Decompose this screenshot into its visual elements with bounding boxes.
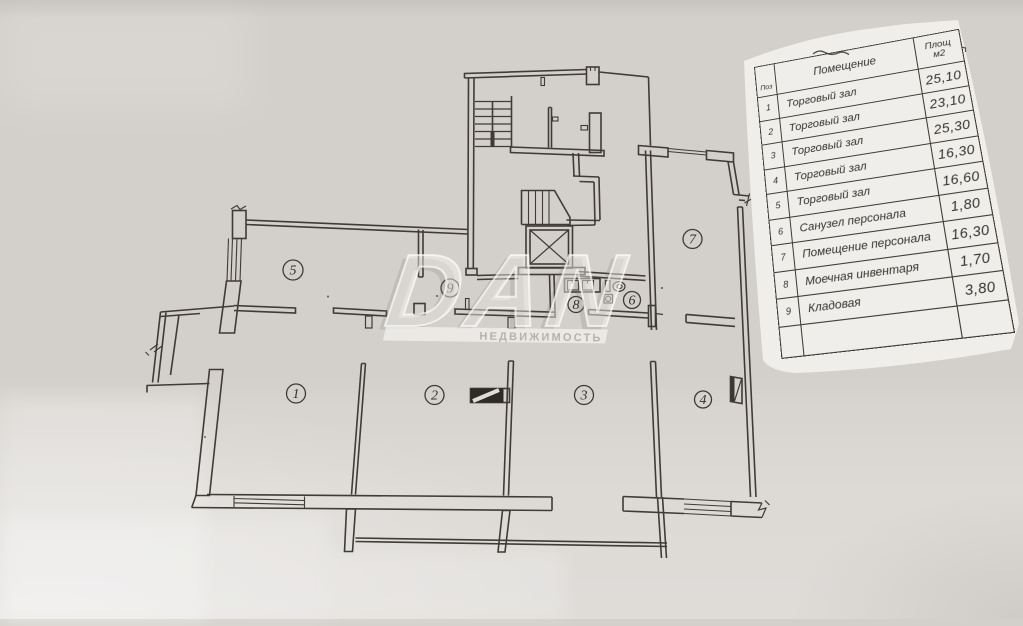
svg-text:5: 5 bbox=[290, 264, 297, 279]
svg-text:4: 4 bbox=[700, 393, 707, 408]
svg-text:НЕДВИЖИМОСТЬ: НЕДВИЖИМОСТЬ bbox=[479, 331, 602, 345]
svg-text:2: 2 bbox=[431, 389, 438, 404]
svg-text:1: 1 bbox=[293, 387, 300, 402]
svg-text:3: 3 bbox=[580, 389, 588, 404]
svg-text:7: 7 bbox=[689, 233, 697, 248]
svg-text:6: 6 bbox=[629, 294, 636, 309]
